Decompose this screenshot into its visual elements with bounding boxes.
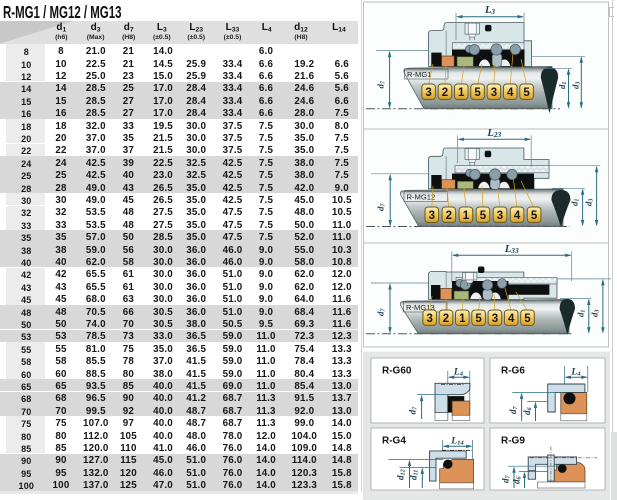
svg-text:3: 3 [425, 87, 431, 99]
svg-text:3: 3 [497, 210, 503, 222]
svg-text:R-G60: R-G60 [382, 366, 412, 377]
svg-text:3: 3 [426, 313, 432, 325]
svg-text:L3: L3 [484, 5, 495, 16]
svg-text:5: 5 [524, 313, 531, 325]
svg-text:4: 4 [508, 313, 515, 325]
svg-text:5: 5 [475, 313, 482, 325]
svg-text:4: 4 [507, 87, 514, 99]
svg-text:R-G4: R-G4 [382, 436, 406, 447]
svg-text:3: 3 [429, 210, 435, 222]
svg-text:R-MG1: R-MG1 [407, 70, 431, 79]
svg-text:L23: L23 [486, 128, 501, 139]
svg-text:1: 1 [459, 313, 466, 325]
svg-text:L33: L33 [504, 244, 519, 255]
svg-text:3: 3 [491, 87, 497, 99]
svg-text:1: 1 [458, 87, 465, 99]
svg-text:R-G6: R-G6 [501, 366, 525, 377]
svg-text:2: 2 [446, 210, 452, 222]
svg-text:5: 5 [523, 87, 530, 99]
svg-text:5: 5 [531, 210, 538, 222]
svg-text:4: 4 [514, 210, 521, 222]
svg-text:5: 5 [480, 210, 487, 222]
svg-text:3: 3 [492, 313, 498, 325]
svg-text:2: 2 [443, 313, 449, 325]
svg-text:2: 2 [442, 87, 448, 99]
svg-text:R-MG12: R-MG12 [407, 192, 436, 201]
svg-text:5: 5 [474, 87, 481, 99]
svg-text:R-G9: R-G9 [501, 436, 525, 447]
svg-text:1: 1 [463, 210, 470, 222]
